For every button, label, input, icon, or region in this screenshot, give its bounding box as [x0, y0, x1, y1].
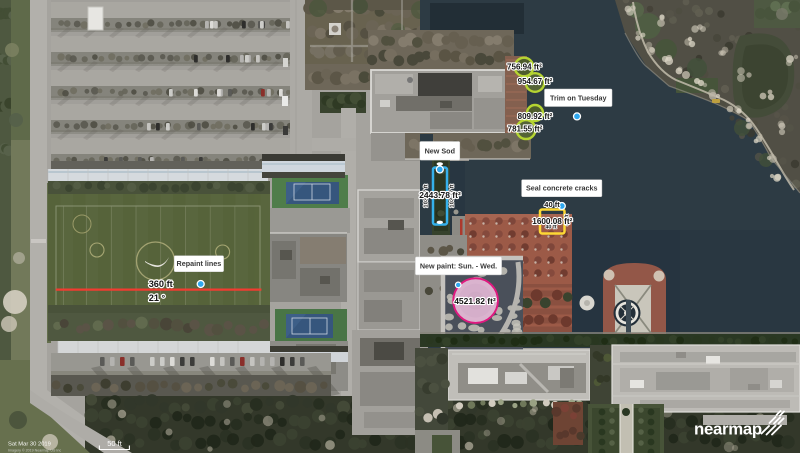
svg-text:756.94 ft²: 756.94 ft² — [507, 62, 542, 71]
svg-text:Sat Mar 30 2019: Sat Mar 30 2019 — [8, 442, 51, 448]
svg-text:21 °: 21 ° — [149, 293, 166, 303]
svg-text:360 ft: 360 ft — [149, 279, 173, 289]
svg-text:Seal concrete cracks: Seal concrete cracks — [526, 184, 598, 193]
svg-text:nearmap: nearmap — [694, 420, 762, 439]
svg-text:40 ft: 40 ft — [544, 200, 560, 209]
svg-text:954.67 ft²: 954.67 ft² — [518, 77, 553, 86]
svg-text:50 ft: 50 ft — [107, 439, 123, 448]
svg-text:Repaint lines: Repaint lines — [177, 259, 222, 268]
svg-text:Imagery © 2019 Nearmap US Inc: Imagery © 2019 Nearmap US Inc — [8, 449, 61, 453]
svg-text:Trim on Tuesday: Trim on Tuesday — [550, 93, 607, 102]
svg-text:809.92 ft²: 809.92 ft² — [518, 112, 553, 121]
svg-text:4521.82 ft²: 4521.82 ft² — [454, 296, 496, 306]
svg-text:New paint: Sun. - Wed.: New paint: Sun. - Wed. — [420, 261, 497, 270]
svg-text:781.55 ft²: 781.55 ft² — [508, 125, 543, 134]
svg-text:2443.78 ft²: 2443.78 ft² — [419, 190, 461, 200]
svg-text:New Sod: New Sod — [425, 146, 455, 155]
svg-text:1600.08 ft²: 1600.08 ft² — [532, 217, 572, 226]
